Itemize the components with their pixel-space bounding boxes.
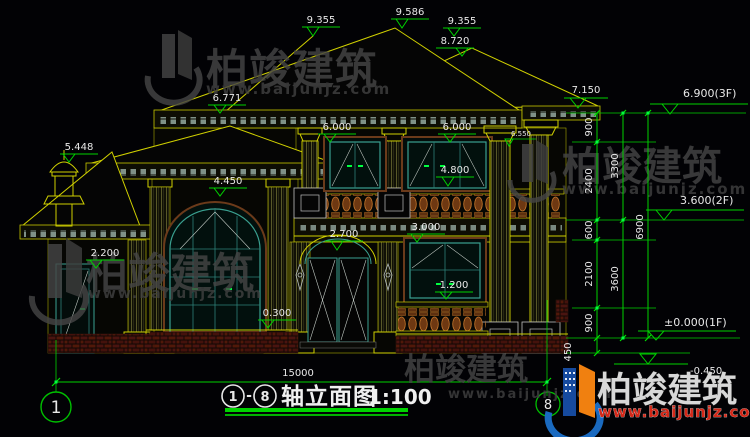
svg-text:3.000: 3.000 — [412, 222, 441, 233]
watermark-name: 柏竣建筑 — [404, 352, 528, 388]
window-2f-right — [402, 137, 492, 191]
balcony-balustrade — [296, 189, 564, 218]
svg-text:9.355: 9.355 — [448, 16, 477, 27]
title-axis-end: 8 — [260, 390, 269, 405]
svg-text:1: 1 — [51, 398, 62, 418]
vdim-sub1: 3300 — [610, 153, 621, 178]
svg-text:5.448: 5.448 — [65, 142, 94, 153]
hdim-total: 15000 — [282, 368, 314, 379]
svg-text:6.000: 6.000 — [443, 122, 472, 133]
svg-text:6.771: 6.771 — [213, 93, 242, 104]
window-2f-left — [324, 137, 386, 191]
vdim-sub2: 3600 — [610, 266, 621, 291]
vdim-seg4: 2100 — [584, 261, 595, 286]
svg-text:3.600(2F): 3.600(2F) — [680, 194, 733, 207]
vdim-seg1: 900 — [584, 117, 595, 136]
svg-text:2.700: 2.700 — [330, 229, 359, 240]
elevation-drawing: 柏竣建筑 www.baijunjz.com 柏竣建筑 www.baijunjz.… — [0, 0, 750, 437]
title-axis-start: 1 — [228, 390, 237, 405]
svg-text:0.300: 0.300 — [263, 308, 292, 319]
title-underline-thin — [225, 414, 408, 416]
svg-text:6.900(3F): 6.900(3F) — [683, 87, 736, 100]
window-1f-right — [404, 238, 486, 304]
cad-canvas: 柏竣建筑 www.baijunjz.com 柏竣建筑 www.baijunjz.… — [0, 0, 750, 437]
svg-text:7.150: 7.150 — [572, 85, 601, 96]
watermark-url: www.baijunjz.com — [598, 403, 750, 421]
title-scale: 1:100 — [368, 385, 432, 409]
title-name: 轴立面图 — [281, 383, 377, 410]
svg-text:4.450: 4.450 — [214, 176, 243, 187]
vdim-seg5: 900 — [584, 313, 595, 332]
svg-text:4.800: 4.800 — [441, 165, 470, 176]
svg-text:6.000: 6.000 — [323, 122, 352, 133]
watermark-url: www.baijunjz.com — [88, 286, 263, 302]
vdim-seg6: 450 — [563, 342, 574, 361]
svg-text:±0.000(1F): ±0.000(1F) — [664, 316, 727, 329]
svg-text:1.200: 1.200 — [440, 280, 469, 291]
title-underline-thick — [225, 408, 408, 412]
title-separator: - — [246, 388, 252, 404]
svg-text:9.355: 9.355 — [307, 15, 336, 26]
logo-tower-orange — [579, 364, 595, 418]
vdim-seg3: 600 — [584, 220, 595, 239]
svg-text:9.586: 9.586 — [396, 7, 425, 18]
vdim-seg2: 2400 — [584, 168, 595, 193]
svg-text:2.200: 2.200 — [91, 248, 120, 259]
svg-text:6.550: 6.550 — [511, 130, 531, 138]
svg-text:8.720: 8.720 — [441, 36, 470, 47]
vdim-total: 6900 — [635, 214, 646, 239]
balustrade-1f — [396, 302, 488, 336]
